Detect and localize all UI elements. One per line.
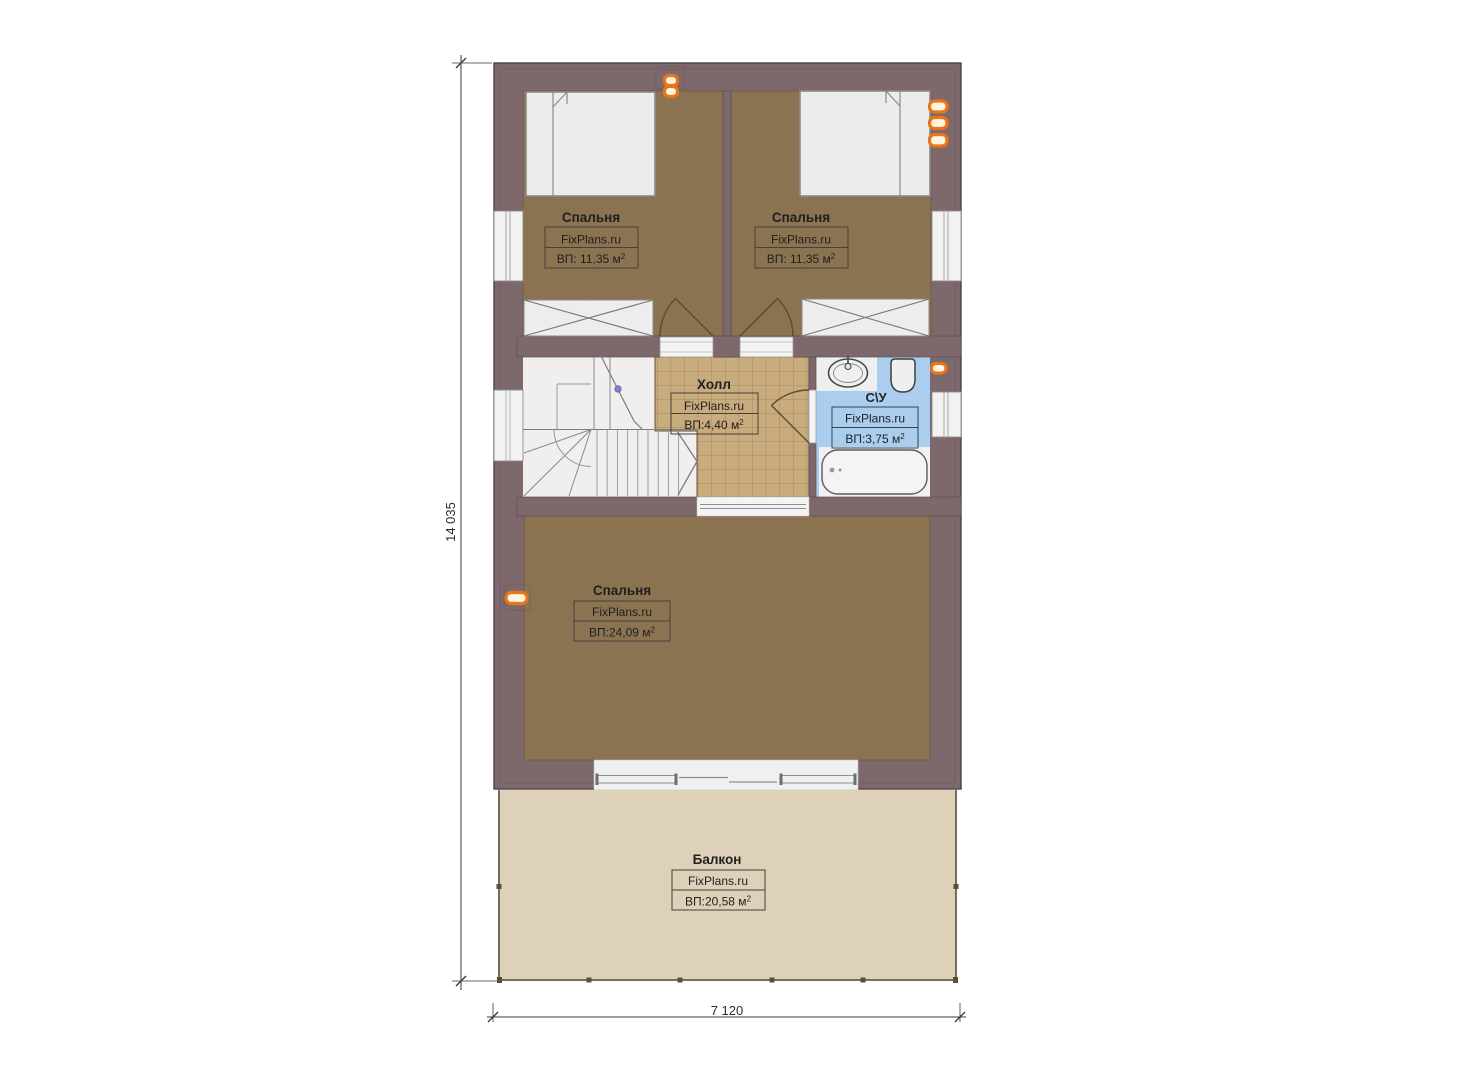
svg-text:FixPlans.ru: FixPlans.ru xyxy=(845,412,905,426)
svg-text:ВП:24,09 м2: ВП:24,09 м2 xyxy=(589,626,656,640)
svg-text:FixPlans.ru: FixPlans.ru xyxy=(771,233,831,247)
svg-text:Холл: Холл xyxy=(697,377,731,392)
svg-text:ВП:4,40 м2: ВП:4,40 м2 xyxy=(684,418,744,432)
svg-text:14 035: 14 035 xyxy=(443,502,458,542)
svg-text:FixPlans.ru: FixPlans.ru xyxy=(592,605,652,619)
svg-text:7 120: 7 120 xyxy=(711,1003,744,1018)
svg-text:Спальня: Спальня xyxy=(593,583,651,598)
svg-text:ВП:3,75 м2: ВП:3,75 м2 xyxy=(845,432,905,446)
svg-text:ВП: 11,35 м2: ВП: 11,35 м2 xyxy=(557,252,626,266)
svg-text:FixPlans.ru: FixPlans.ru xyxy=(684,399,744,413)
svg-text:С\У: С\У xyxy=(865,390,887,405)
svg-text:FixPlans.ru: FixPlans.ru xyxy=(688,874,748,888)
svg-text:ВП: 11,35 м2: ВП: 11,35 м2 xyxy=(767,252,836,266)
svg-text:Балкон: Балкон xyxy=(693,852,742,867)
svg-text:ВП:20,58 м2: ВП:20,58 м2 xyxy=(685,895,752,909)
svg-text:Спальня: Спальня xyxy=(772,210,830,225)
svg-text:Спальня: Спальня xyxy=(562,210,620,225)
svg-text:FixPlans.ru: FixPlans.ru xyxy=(561,233,621,247)
